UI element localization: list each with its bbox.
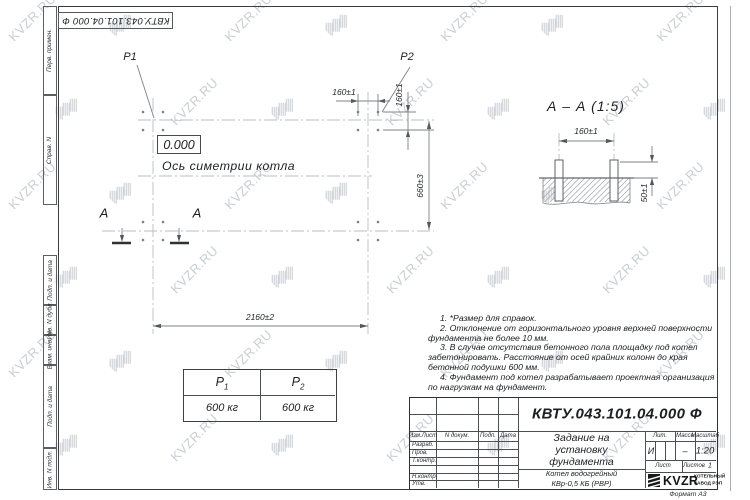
note-2: 2. Отклонение от горизонтального уровня …	[428, 324, 716, 344]
masshtab-label: Масштаб	[691, 433, 719, 439]
load-table-value-p2: 600 кг	[282, 402, 314, 414]
format-label: Формат А3	[648, 491, 728, 498]
lit-label: Лит.	[653, 433, 667, 439]
row-prov: Пров.	[412, 450, 428, 456]
boiler-symmetry-axis-label: Ось симетрии котла	[162, 159, 295, 173]
lit-value: И	[648, 446, 654, 456]
load-table: Р1 Р2 600 кг 600 кг	[183, 369, 337, 422]
listov-label: Листов	[683, 463, 705, 469]
note-4: 4. Фундамент под котел разрабатывает про…	[428, 373, 716, 393]
document-title: Задание на установку фундамента	[518, 431, 645, 469]
section-letter-left: А	[100, 206, 109, 221]
dim-160-top: 160±1	[332, 87, 356, 97]
col-n-dokum: N докум.	[445, 433, 469, 439]
document-number: КВТУ.043.101.04.000 Ф	[532, 406, 702, 423]
section-letter-right: А	[193, 206, 202, 221]
dim-section-50: 50±1	[639, 184, 649, 203]
drawing-sheet: KVZR.RUKVZR.RUKVZR.RUKVZR.RUKVZR.RUKVZR.…	[0, 0, 750, 500]
elevation-mark-box: 0.000	[157, 135, 201, 154]
col-podp: Подп.	[480, 433, 496, 439]
top-stamp-number: КВТУ.043.101.04.000 Ф	[62, 15, 170, 26]
load-point-p2-label: P2	[400, 51, 413, 63]
note-3: 3. В случае отсутствия бетонного пола пл…	[428, 343, 716, 372]
row-tkontr: Т.контр.	[412, 458, 436, 464]
row-utv: Утв.	[412, 481, 426, 487]
load-table-value-p1: 600 кг	[206, 402, 238, 414]
kvzr-logo-icon	[648, 474, 661, 487]
list-label: Лист	[655, 463, 670, 469]
dim-660: 660±3	[415, 174, 425, 198]
load-table-header-p2: Р2	[292, 375, 305, 392]
dim-160-side: 160±1	[394, 83, 404, 107]
section-view-title: А – А (1:5)	[547, 98, 625, 114]
title-block: КВТУ.043.101.04.000 Ф Изм.Лист N докум. …	[409, 397, 718, 490]
listov-value: 1	[708, 463, 712, 470]
massa-value: –	[682, 446, 687, 456]
logo-caption-line1: КОТЕЛЬНЫЙ	[694, 475, 725, 480]
row-razrab: Разраб.	[412, 442, 434, 448]
col-izm-list: Изм.Лист	[409, 433, 437, 439]
technical-notes: 1. *Размер для справок. 2. Отклонение от…	[428, 314, 716, 393]
dim-section-160: 160±1	[574, 126, 598, 136]
elevation-value: 0.000	[163, 138, 194, 152]
load-point-p1-label: P1	[123, 51, 136, 63]
product-name: Котел водогрейный КВр-0,5 КБ (РВР)	[518, 469, 645, 488]
top-stamp-box: КВТУ.043.101.04.000 Ф	[58, 12, 173, 29]
center-lines	[102, 92, 614, 334]
anchor-bolts-section	[555, 160, 618, 201]
logo-caption-line2: ЗАВОД РЭП	[694, 481, 722, 486]
load-table-header-p1: Р1	[216, 375, 229, 392]
dim-2160: 2160±2	[246, 312, 274, 322]
kvzr-logo-text: KVZR	[663, 474, 698, 488]
col-data: Дата	[500, 433, 516, 439]
row-nkontr: Н.контр.	[412, 474, 437, 480]
masshtab-value: 1:20	[696, 445, 715, 456]
